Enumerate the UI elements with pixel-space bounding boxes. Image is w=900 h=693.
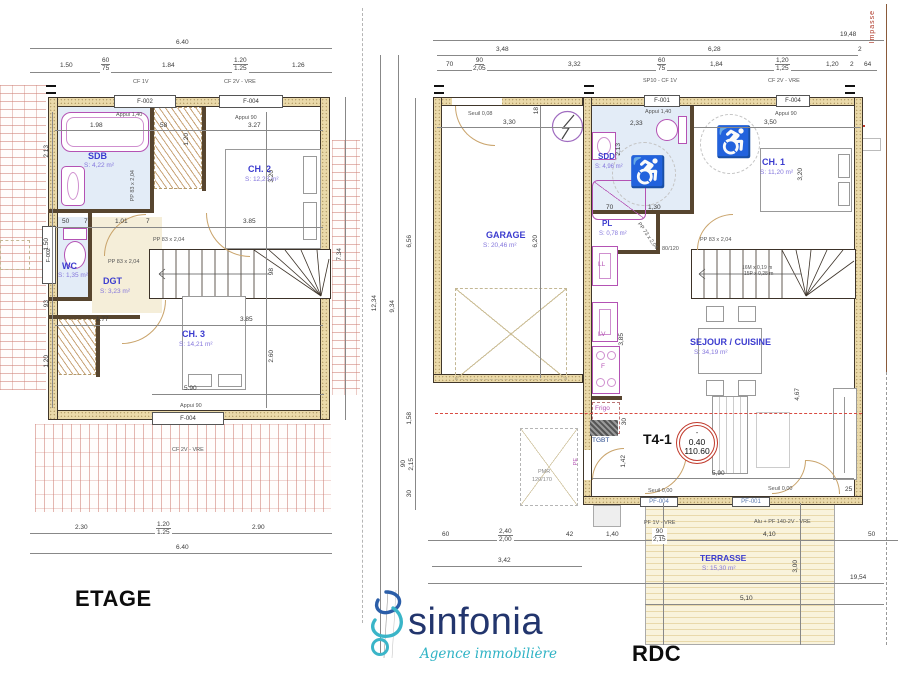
dim-value: 3,30 (503, 120, 516, 127)
boundary-dashed-line (886, 372, 887, 645)
sdd-toilet-tank (678, 116, 687, 144)
dim-value: 3.27 (248, 123, 261, 130)
room-label-wc: WC (62, 262, 77, 272)
room-label-dgt: DGT (103, 277, 122, 287)
partition (592, 396, 622, 400)
pillow (838, 182, 850, 206)
window-label: F-001 (654, 98, 670, 104)
room-label-sdb: SDB (88, 152, 107, 162)
partition (48, 209, 154, 213)
dim-stack: 902,15 (652, 528, 667, 544)
plot-divider-line (362, 8, 363, 623)
window-note: CF 2V - VRE (768, 79, 800, 85)
window-note: CF 2V - VRE (172, 448, 204, 454)
dim-value: 60 (657, 57, 666, 65)
window-note: Alu + PF 140-2V - VRE (754, 520, 811, 526)
dim-value: 1.20 (44, 355, 51, 368)
dim-value: 90 (655, 528, 664, 536)
window-pf001: PF-001 (732, 497, 770, 507)
dim-value: 6.40 (176, 545, 189, 552)
wall-vent-mark (584, 85, 594, 94)
dim-value: 5,10 (740, 596, 753, 603)
dim-value: 75 (658, 65, 665, 72)
dim-value: 6,56 (407, 235, 414, 248)
room-area-wc: S: 1,35 m² (58, 273, 88, 280)
window-label: F-004 (180, 416, 196, 422)
door-note: PP 83 x 2,04 (108, 260, 139, 266)
dim-value: 2,15 (409, 458, 416, 471)
dim-line (52, 112, 53, 408)
window-note: SP10 - CF 1V (643, 79, 677, 85)
dim-value: 1.26 (292, 63, 305, 70)
dim-value: 2,13 (616, 143, 623, 156)
garage-wall-left (433, 97, 442, 383)
dim-line (694, 127, 860, 128)
wall-vent-mark (46, 85, 56, 94)
dim-value: 1,25 (776, 65, 789, 72)
threshold-note: Seuil 0,00 (768, 487, 792, 493)
dim-value: 1.25 (157, 529, 170, 536)
appliance-label-f: F (601, 364, 605, 371)
dim-value: 70 (606, 205, 613, 212)
dim-value: 90 (401, 460, 408, 467)
window-f004-top: F-004 (219, 95, 283, 108)
dim-value: 25 (845, 487, 852, 494)
impasse-fence-line (886, 4, 887, 372)
dim-line (380, 55, 381, 655)
dim-value: 1.98 (90, 123, 103, 130)
dim-value: 1,20 (826, 62, 839, 69)
dim-value: 42 (566, 532, 573, 539)
dim-value: 1.20 (156, 521, 171, 529)
pmr-size-label: 120/170 (532, 478, 552, 484)
window-label: PF-001 (741, 499, 761, 505)
garage-door-opening (452, 98, 502, 105)
pmr-parking-outline (520, 428, 578, 506)
dim-value: 70 (446, 62, 453, 69)
dim-value: 75 (102, 65, 109, 72)
dim-line (428, 583, 884, 584)
dim-value: 1.01 (115, 219, 128, 226)
window-f002-top: F-002 (114, 95, 176, 108)
shower-size-note: 80/120 (662, 247, 679, 253)
floor-plan-sheet: Impasse F-002 F-004 F-004 F-002 (0, 0, 900, 693)
wheelchair-icon: ♿ (715, 128, 752, 158)
wc-toilet-tank (63, 228, 87, 240)
dim-value: 2,05 (473, 65, 486, 72)
dim-value: 4,10 (763, 532, 776, 539)
closet-hatch-etage-bottom (54, 319, 96, 375)
dim-stack: 1.201.25 (155, 521, 172, 537)
room-area-sdd: S: 4,96 m² (595, 164, 623, 170)
window-f004-bottom: F-004 (152, 412, 224, 425)
window-note: Appui 90 (235, 116, 257, 122)
dim-value: 6.40 (176, 40, 189, 47)
dim-value: 6,28 (708, 47, 721, 54)
partition (690, 106, 694, 214)
dim-value: 2,00 (499, 536, 512, 543)
rdc-wall-top (583, 97, 863, 106)
pillow (838, 154, 850, 178)
dim-value: 1,20 (775, 57, 790, 65)
dim-value: 1,30 (648, 205, 661, 212)
dim-line (415, 98, 416, 510)
door-note: PP 83 x 2,04 (131, 170, 137, 201)
room-label-ch3: CH. 3 (182, 330, 205, 340)
chair (738, 380, 756, 396)
dim-value: 93 (44, 300, 51, 307)
dim-value: 1.20 (233, 57, 248, 65)
dim-value: 19,48 (840, 32, 856, 39)
dim-value: 1.84 (162, 63, 175, 70)
dim-value: 2.30 (75, 525, 88, 532)
threshold-note: Seuil 0,08 (468, 112, 492, 118)
unit-label: T4-1 (643, 432, 672, 447)
dim-value: 3,20 (798, 168, 805, 181)
dim-line (433, 40, 884, 41)
dim-stack: 1,201,25 (774, 57, 791, 73)
dim-value: 2 (850, 62, 854, 69)
room-label-sdd: SDD (598, 153, 615, 162)
room-area-pl: S: 0,78 m² (599, 231, 627, 237)
stairs-rdc (691, 249, 863, 299)
dim-value: 5,90 (712, 471, 725, 478)
dim-value: 98 (269, 268, 276, 275)
dim-line (30, 48, 332, 49)
dim-line (645, 604, 884, 605)
room-area-ch3: S: 14,21 m² (179, 342, 213, 349)
stairs-etage (149, 249, 331, 299)
window-label: F-002 (137, 99, 153, 105)
dim-value: 12,34 (372, 295, 379, 311)
dim-line (437, 55, 858, 56)
room-area-dgt: S: 3,23 m² (100, 289, 130, 296)
dim-value: 3,50 (764, 120, 777, 127)
kitchen-island (712, 396, 748, 474)
door-note: PP 83 x 2,04 (700, 238, 731, 244)
pillow (303, 156, 317, 194)
dim-stack: 6075 (656, 57, 667, 73)
logo-tagline: Agence immobilière (420, 646, 557, 662)
window-f002-side: F-002 (42, 226, 56, 284)
impasse-label: Impasse (869, 10, 876, 43)
dim-stack: 902,05 (472, 57, 487, 73)
dim-value: 64 (864, 62, 871, 69)
dim-value: 50 (868, 532, 875, 539)
dim-value: 3.20 (269, 170, 276, 183)
window-label: PF-004 (649, 499, 669, 505)
room-area-garage: S: 20,46 m² (483, 243, 517, 250)
dim-value: 7 (84, 219, 88, 226)
dim-value: 90 (475, 57, 484, 65)
wheelchair-icon: ♿ (629, 158, 666, 188)
partition (88, 213, 92, 299)
room-area-terrasse: S: 15,30 m² (702, 566, 736, 573)
entry-step (593, 505, 621, 527)
dim-value: 1.50 (60, 63, 73, 70)
closet-hatch-etage-top (154, 107, 202, 189)
dim-value: 1,58 (407, 412, 414, 425)
dim-value: 3,42 (498, 558, 511, 565)
dim-line (55, 325, 323, 326)
dim-line (398, 55, 399, 605)
dim-line (30, 72, 332, 73)
dim-stack: 6075 (100, 57, 111, 73)
room-label-garage: GARAGE (486, 231, 526, 241)
window-note: CF 2V - VRE (224, 80, 256, 86)
rdc-wall-bottom (583, 496, 863, 505)
dim-value: 30 (622, 418, 629, 425)
room-label-sejour: SEJOUR / CUISINE (690, 338, 771, 348)
dim-value: 1.77 (96, 317, 109, 324)
dim-line (30, 533, 332, 534)
dim-line (540, 106, 541, 378)
stove (592, 346, 620, 394)
stair-note: 15P x 0,28 m (744, 272, 773, 277)
dim-value: 2.60 (269, 350, 276, 363)
dim-value: 1,40 (606, 532, 619, 539)
dim-line (55, 227, 323, 228)
dim-value: 7 (146, 219, 150, 226)
appliance-label-lv: LV (598, 332, 605, 339)
pillow (218, 374, 242, 387)
room-area-ch1: S: 11,20 m² (760, 170, 793, 177)
window-pf004: PF-004 (640, 497, 678, 507)
etage-wall-top (48, 97, 330, 107)
floor-title-rdc: RDC (632, 641, 681, 667)
dim-value: 7.34 (337, 248, 344, 261)
cabinet (833, 388, 857, 480)
dim-value: 2.90 (252, 525, 265, 532)
dim-value: 1,42 (621, 455, 628, 468)
dim-value: 50 (62, 219, 69, 226)
room-label-terrasse: TERRASSE (700, 554, 746, 563)
window-f004-rdc: F-004 (776, 95, 810, 107)
dim-line (55, 130, 323, 131)
dim-value: 60 (442, 532, 449, 539)
wall-vent-mark (845, 85, 855, 94)
dim-value: 2,15 (653, 536, 666, 543)
level-value: 110.60 (684, 447, 709, 456)
dim-line (266, 112, 267, 408)
roof-hatch-right (332, 140, 360, 395)
dim-stack: 1.201.25 (232, 57, 249, 73)
dim-value: 9,34 (390, 300, 397, 313)
pmr-label: PMR (538, 470, 550, 476)
room-label-pl: PL (602, 220, 612, 229)
level-marker: - 0.40 110.60 (676, 422, 718, 464)
logo-wordmark: sinfonia (408, 603, 543, 641)
dim-value: 60 (101, 57, 110, 65)
appliance-label-frigo: Frigo (595, 406, 610, 413)
wall-vent-mark (434, 85, 444, 94)
dim-value: 30 (407, 490, 414, 497)
room-label-ch1: CH. 1 (762, 158, 785, 168)
roof-hatch-bottom (35, 424, 331, 512)
window-note: Appui 1,40 (116, 113, 142, 119)
pillow (303, 202, 317, 240)
shower-outline (0, 240, 30, 270)
level-dashed-line (435, 413, 862, 414)
sinfonia-logo-icon (360, 588, 412, 664)
sdb-sink (61, 166, 85, 206)
tgbt-label: TGBT (592, 438, 609, 445)
sdd-toilet-bowl (656, 119, 678, 141)
window-note: PF 1V - VRE (644, 521, 675, 527)
dim-line (437, 127, 583, 128)
dim-line (592, 478, 854, 479)
dim-value: 2,40 (498, 528, 513, 536)
chair (738, 306, 756, 322)
dim-line (345, 97, 346, 420)
dim-value: 4,67 (795, 388, 802, 401)
dim-value: 58 (160, 123, 167, 130)
dim-line (432, 566, 582, 567)
room-area-sejour: S: 34,19 m² (694, 350, 728, 357)
dim-value: 6,20 (533, 235, 540, 248)
appliance-label-ll: LL (598, 262, 605, 269)
dim-value: 3,32 (568, 62, 581, 69)
dim-value: 18 (534, 107, 541, 114)
dim-value: 2 (858, 47, 862, 54)
dim-line (30, 553, 332, 554)
garage-parking-outline (455, 288, 567, 380)
window-f001: F-001 (644, 95, 680, 107)
partition (202, 107, 206, 191)
window-note: CF 1V (133, 80, 149, 86)
dim-value: 19,54 (850, 575, 866, 582)
dim-value: 1.50 (44, 238, 51, 251)
roof-hatch-left (0, 85, 46, 390)
partition (48, 297, 92, 301)
tgbt-box (590, 420, 618, 436)
dim-value: 3,00 (793, 560, 800, 573)
window-note: Appui 90 (775, 112, 797, 118)
room-area-sdb: S: 4,22 m² (84, 163, 114, 170)
dim-value: 1.20 (184, 133, 191, 146)
window-note: Appui 1,40 (645, 110, 671, 116)
floor-title-etage: ETAGE (75, 586, 152, 612)
dim-value: 3.85 (240, 317, 253, 324)
window-label: F-004 (243, 99, 259, 105)
dim-value: 3.85 (243, 219, 256, 226)
threshold-note: Seuil 0,00 (648, 489, 672, 495)
dim-value: 5.90 (184, 386, 197, 393)
dim-line (152, 394, 324, 395)
partition (150, 107, 154, 213)
window-label: F-004 (785, 98, 801, 104)
entry-door-opening (584, 450, 591, 480)
dim-stack: 2,402,00 (497, 528, 514, 544)
chair (706, 380, 724, 396)
dim-value: 1.25 (234, 65, 247, 72)
chair (706, 306, 724, 322)
rdc-wall-left (583, 97, 592, 505)
door-note: PP 83 x 2,04 (153, 238, 184, 244)
dim-value: 3,48 (496, 47, 509, 54)
window-note: Appui 90 (180, 404, 202, 410)
dim-value: 1,84 (710, 62, 723, 69)
dim-value: 2.13 (44, 145, 51, 158)
dim-value: 3,85 (619, 333, 626, 346)
dim-value: 2,33 (630, 121, 643, 128)
